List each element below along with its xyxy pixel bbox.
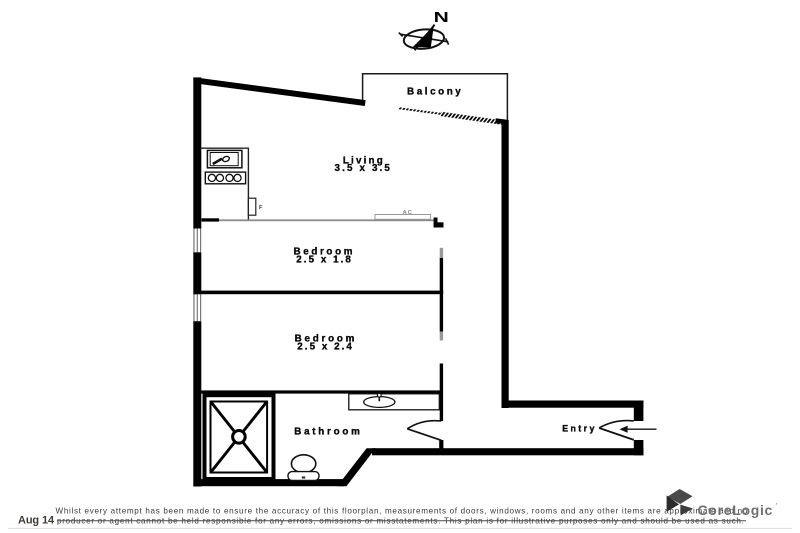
svg-text:3.5 x 3.5: 3.5 x 3.5	[335, 163, 392, 174]
svg-text:Entry: Entry	[562, 423, 597, 433]
svg-text:Aug 14: Aug 14	[18, 514, 55, 526]
svg-text:CoreLogic: CoreLogic	[698, 502, 774, 518]
svg-text:AC: AC	[403, 210, 413, 216]
svg-text:Balcony: Balcony	[407, 86, 463, 97]
svg-text:2.5 x 1.8: 2.5 x 1.8	[296, 254, 353, 265]
svg-text:Whilst every attempt has been: Whilst every attempt has been made to en…	[56, 506, 749, 515]
svg-text:N: N	[434, 9, 449, 25]
svg-text:2.5 x 2.4: 2.5 x 2.4	[297, 341, 354, 352]
svg-text:Bathroom: Bathroom	[294, 426, 362, 437]
